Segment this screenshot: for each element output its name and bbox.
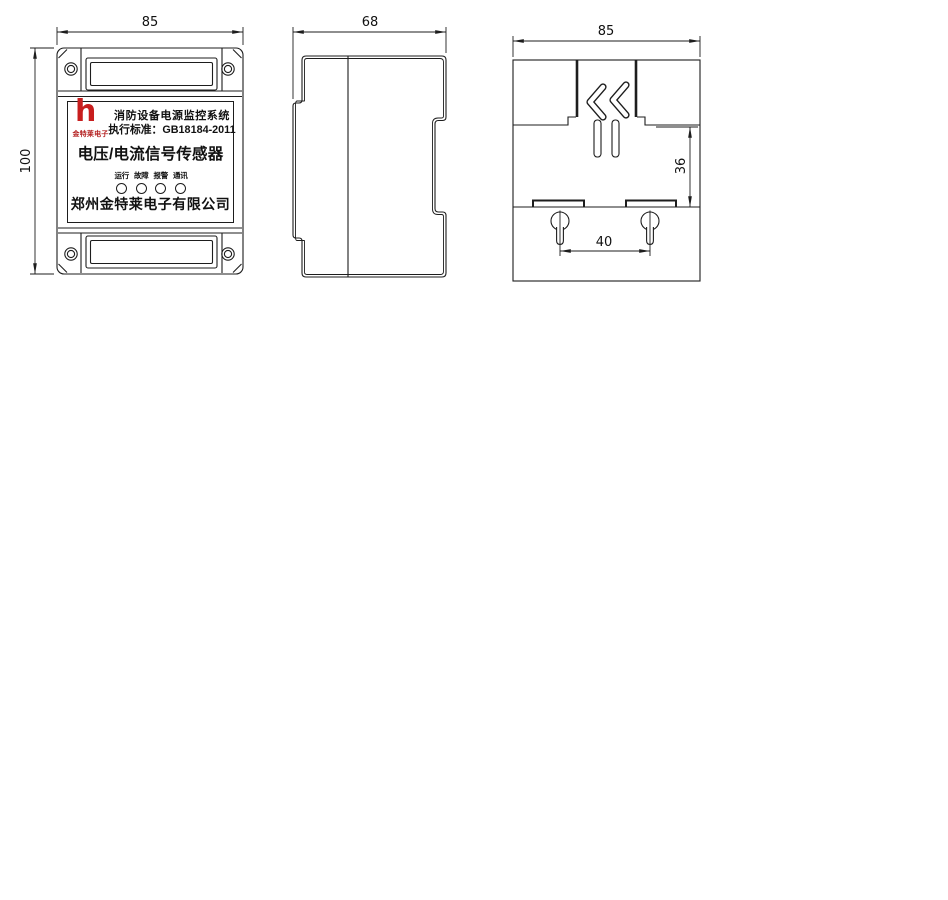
led-fault: 故障: [132, 170, 152, 194]
label-product-title: 电压/电流信号传感器: [68, 142, 233, 164]
led-comm-lamp-icon: [175, 183, 186, 194]
din-clip-arrows: [590, 85, 626, 117]
keyhole-left: [551, 211, 569, 257]
dim-back-hole-spacing: 40: [588, 236, 620, 250]
din-clip-slots: [594, 120, 619, 157]
dim-front-height: 100: [20, 144, 34, 178]
led-fault-label: 故障: [134, 170, 148, 181]
drawing-canvas: 85 100 68 85 36 40 h 金特莱电子 消防设备电源监控系统 执行…: [0, 0, 948, 900]
dim-back-rail-height: 36: [675, 149, 689, 183]
led-comm: 通讯: [171, 170, 191, 194]
label-standard: 执行标准：GB18184-2011: [108, 121, 236, 137]
led-comm-label: 通讯: [173, 170, 187, 181]
back-mount-ledge: [513, 201, 700, 208]
brand-logo-mark: h: [75, 95, 96, 128]
label-company-name: 郑州金特莱电子有限公司: [68, 194, 233, 214]
dim-front-width: 85: [134, 16, 166, 30]
product-label: h 金特莱电子 消防设备电源监控系统 执行标准：GB18184-2011 电压/…: [67, 101, 234, 223]
led-run-lamp-icon: [116, 183, 127, 194]
side-view-body: [293, 56, 446, 277]
led-alarm: 报警: [151, 170, 171, 194]
led-alarm-label: 报警: [154, 170, 168, 181]
dim-back-width: 85: [590, 25, 622, 39]
led-indicators: 运行 故障 报警 通讯: [112, 170, 192, 194]
dim-side-depth: 68: [354, 16, 386, 30]
led-run: 运行: [112, 170, 132, 194]
led-run-label: 运行: [115, 170, 129, 181]
led-alarm-lamp-icon: [155, 183, 166, 194]
led-fault-lamp-icon: [136, 183, 147, 194]
brand-logo-text: 金特莱电子: [68, 129, 113, 139]
keyhole-right: [641, 211, 659, 257]
